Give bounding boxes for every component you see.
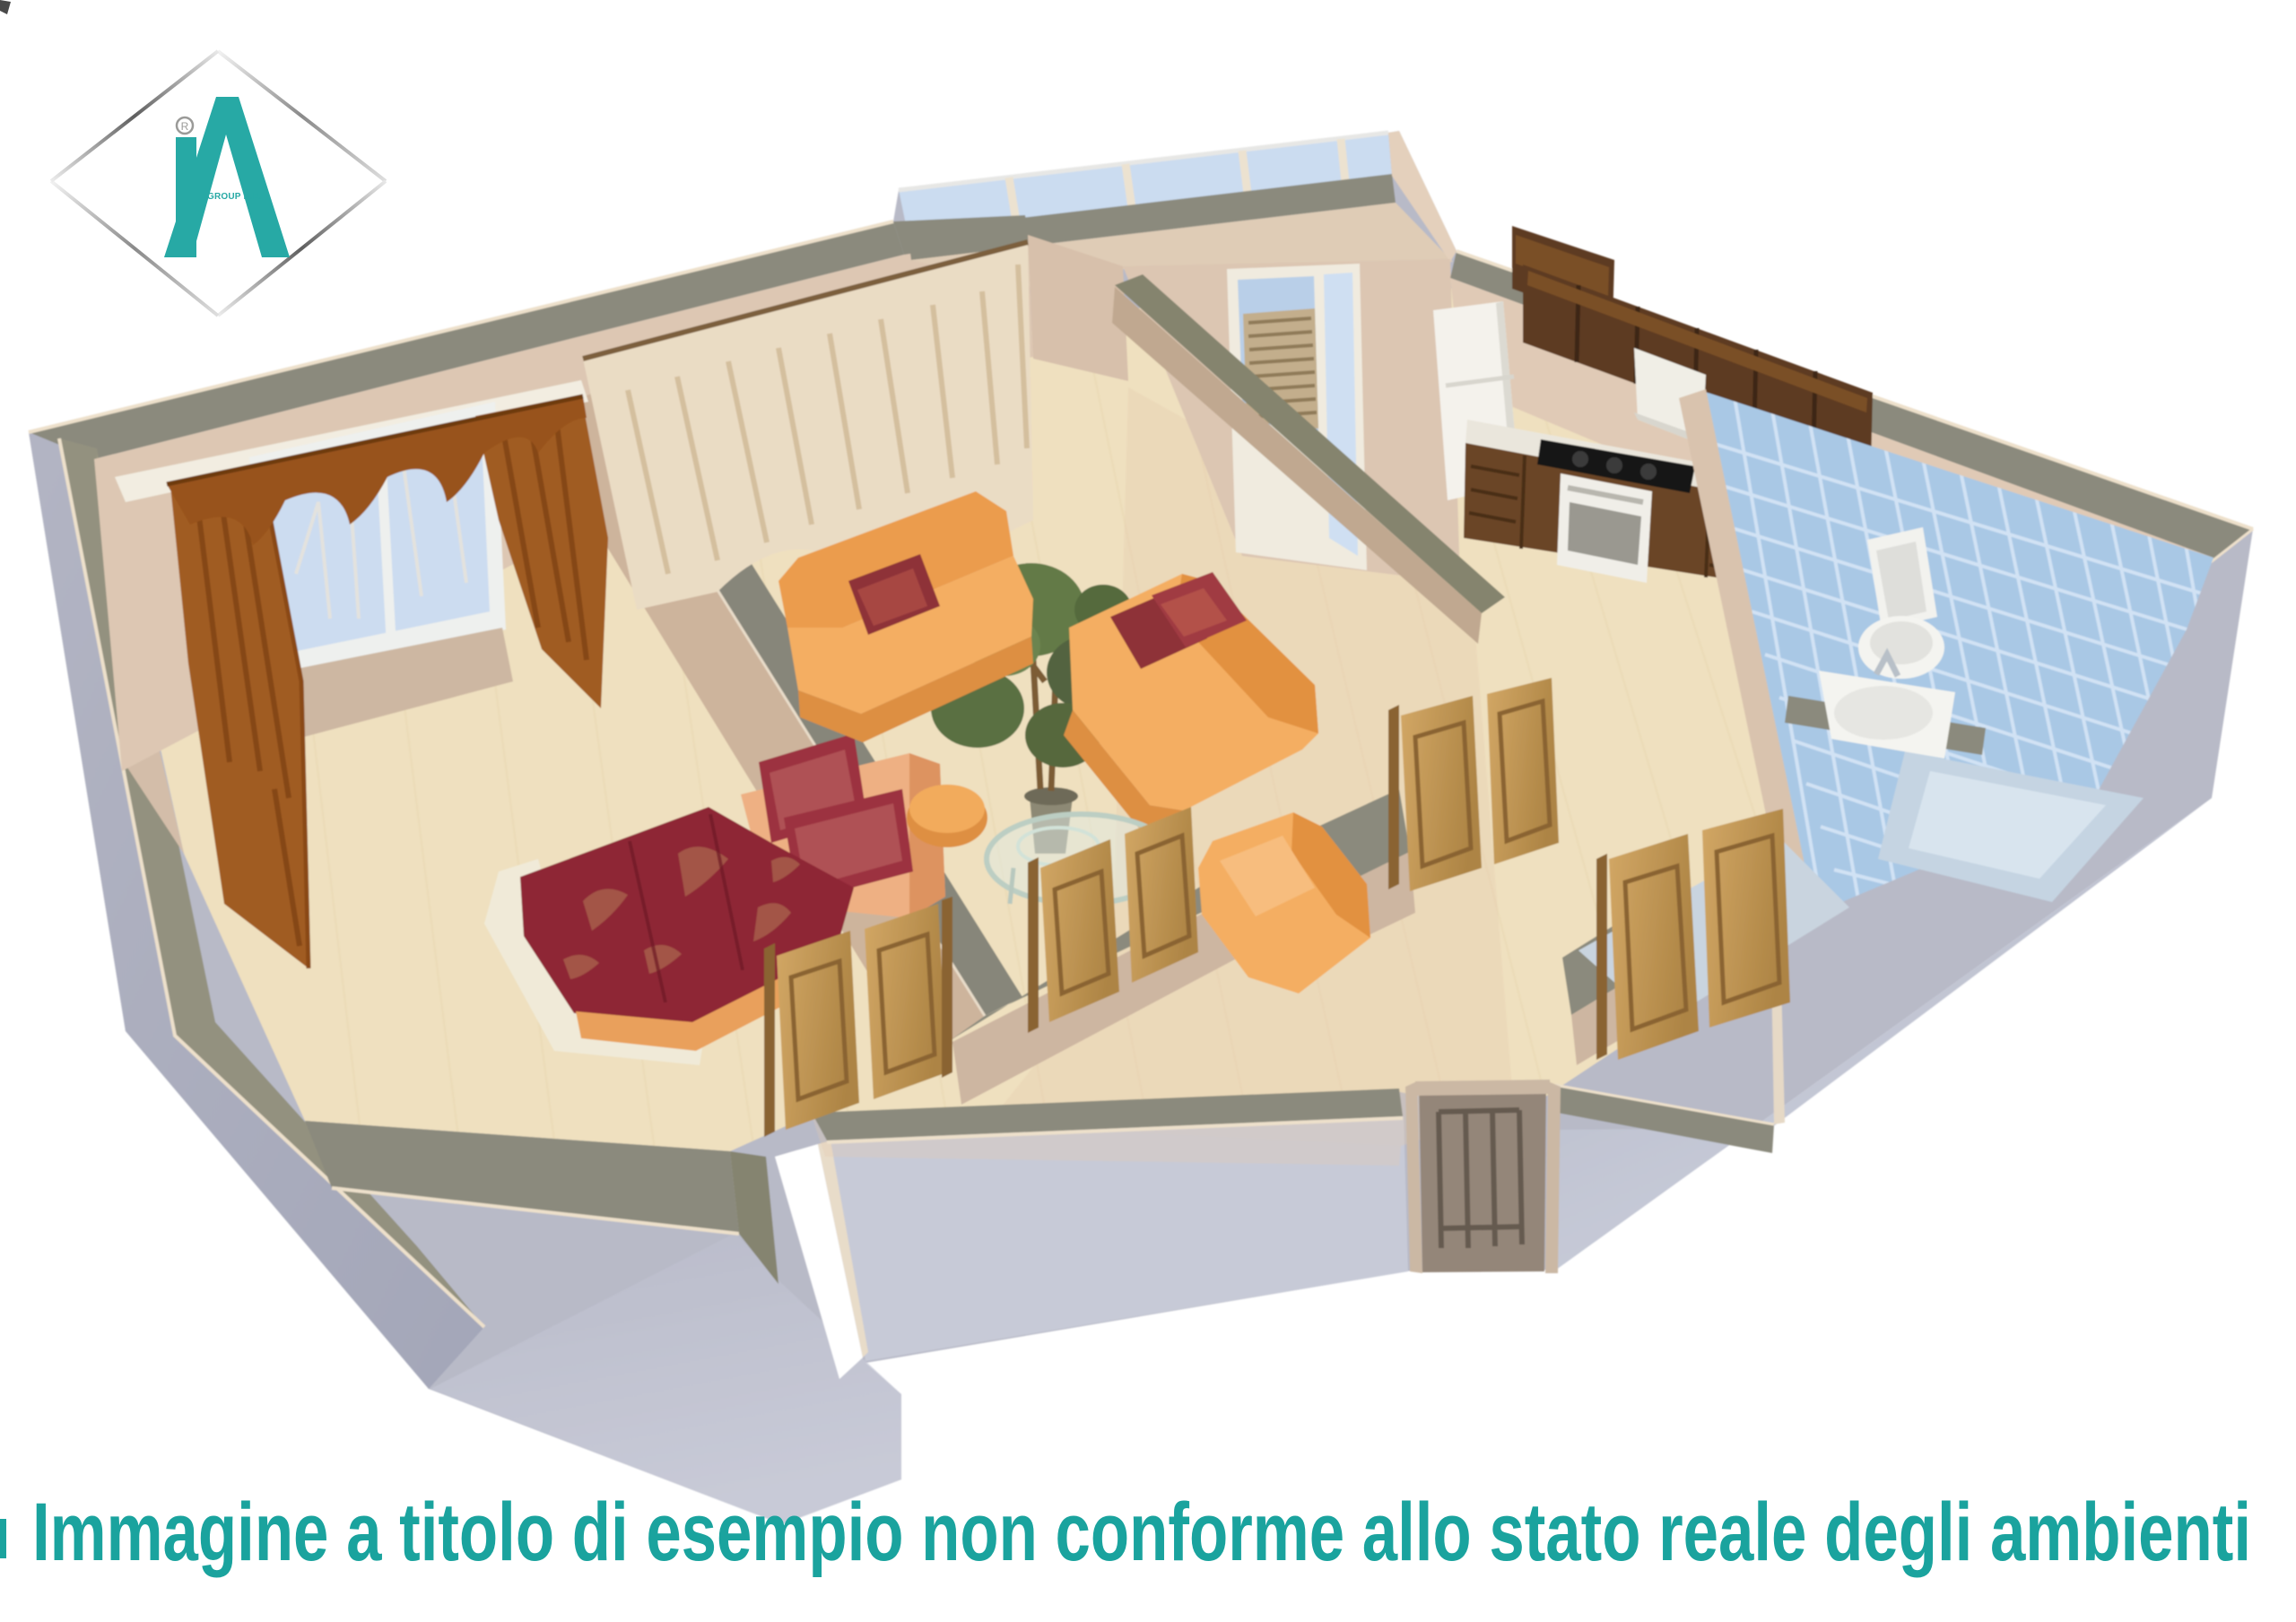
svg-text:GROUP R.E.: GROUP R.E. — [207, 192, 262, 202]
svg-text:Immagine a titolo di esempio n: Immagine a titolo di esempio non conform… — [32, 1487, 2251, 1578]
svg-text:R: R — [181, 120, 189, 133]
